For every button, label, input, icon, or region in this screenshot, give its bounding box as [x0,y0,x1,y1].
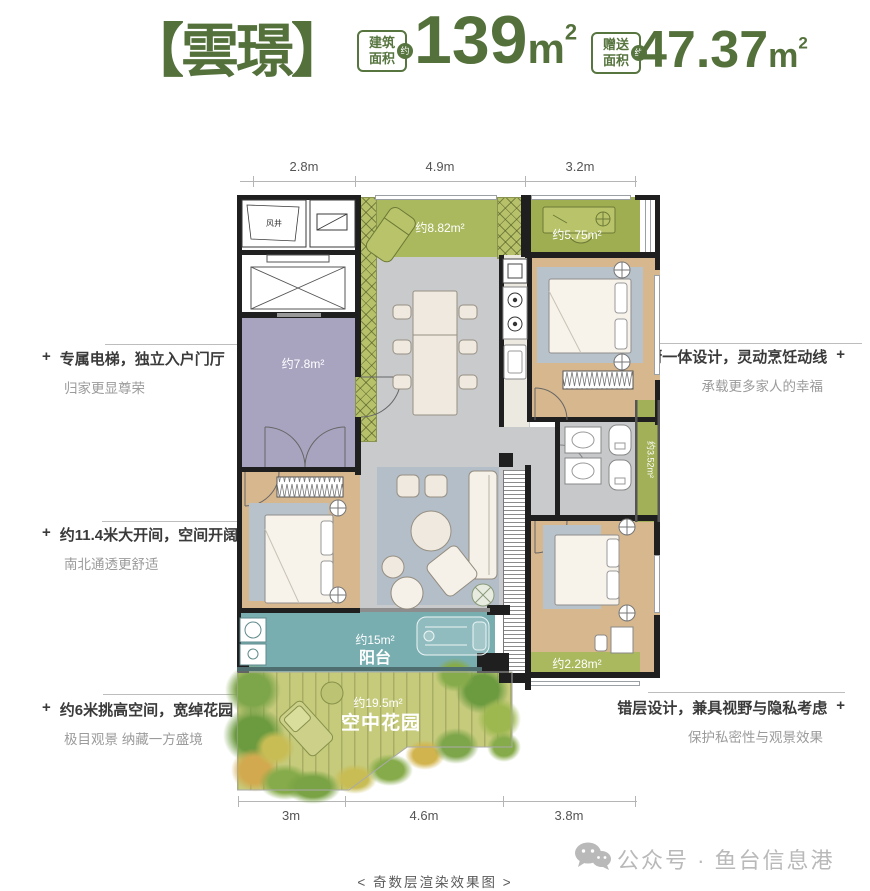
dim-top-3: 3.2m [550,159,610,174]
dim-tick [355,176,356,187]
top-dimension-line [240,181,637,182]
wechat-icon [574,842,612,870]
bed2-bay-area-label: 约2.28m² [542,655,612,672]
study-area-label: 约5.75m² [547,226,607,243]
floorplan: 风井 约7.8m² 约8.82m² 约5.75m² 约3.52m² 约2.28m… [237,195,660,795]
annotation-garden: +约6米挑高空间，宽绰花园 极目观景 纳藏一方盛境 [42,699,233,748]
bedroom2-furniture [543,519,635,653]
plus-marker: + [836,697,845,718]
built-area-label-box: 建筑 面积 约 [357,30,407,72]
leader-line [105,344,245,345]
divider [635,400,638,522]
foyer-area-label: 约7.8m² [273,355,333,372]
dim-bottom-2: 4.6m [394,808,454,823]
render-caption: < 奇数层渲染效果图 > [357,871,512,891]
built-area-number: 139 [414,2,527,78]
bathroom-fixtures [565,425,631,490]
leader-line [103,694,238,695]
dim-tick [238,796,239,807]
dim-top-1: 2.8m [274,159,334,174]
annotation-bay: +约11.4米大开间，空间开阔 南北通透更舒适 [42,524,238,573]
annotation-sub: 南北通透更舒适 [64,553,238,573]
dining-table [393,291,477,415]
watermark-text: 公众号 · 鱼台信息港 [617,843,835,875]
annotation-sub: 承载更多家人的幸福 [632,375,823,395]
divider [658,400,661,522]
floorplan-poster: 【雲璟】 建筑 面积 约 139m2 赠送 面积 约 47.37m2 2.8m … [0,0,870,891]
floorplan-linework [237,195,660,795]
annotation-title: 专属电梯，独立入户门厅 [60,348,225,369]
gift-area-sup: 2 [798,34,807,53]
plus-marker: + [836,346,845,367]
annotation-elevator: +专属电梯，独立入户门厅 归家更显尊荣 [42,348,225,397]
kitchen-fixtures [503,259,527,379]
dim-bottom-1: 3m [261,808,321,823]
dim-bottom-3: 3.8m [539,808,599,823]
built-area-sup: 2 [565,19,577,44]
terrace-area-label: 约8.82m² [395,219,485,236]
annotation-kitchen: 餐厨一体设计，灵动烹饪动线+ 承载更多家人的幸福 [632,346,845,395]
page-title: 【雲璟】 [126,4,346,88]
dim-top-2: 4.9m [410,159,470,174]
elevator [251,255,345,317]
built-area-unit: m [527,25,564,72]
annotation-sub: 极目观景 纳藏一方盛境 [64,728,233,748]
annotation-sub: 归家更显尊荣 [64,377,225,397]
bedroom3-furniture [249,477,346,603]
plus-marker: + [42,524,51,545]
side-terrace-area-label: 约3.52m² [645,430,658,490]
annotation-title: 约11.4米大开间，空间开阔 [60,524,238,545]
dim-tick [635,176,636,187]
plus-marker: + [42,699,51,720]
dim-tick [345,796,346,807]
approx-badge: 约 [397,43,413,59]
dim-tick [525,176,526,187]
balcony-name-label: 阳台 [340,644,410,668]
dim-tick [253,176,254,187]
ac-closet [310,200,355,247]
shaft-label: 风井 [244,218,304,229]
dim-tick [635,796,636,807]
gift-area-value: 47.37m2 [638,24,808,76]
gift-area-unit: m [768,37,798,75]
dim-tick [503,796,504,807]
bedroom1-furniture [537,262,643,389]
living-furniture [377,467,499,609]
annotation-title: 餐厨一体设计，灵动烹饪动线 [632,346,827,367]
plus-marker: + [42,348,51,369]
garden-name-label: 空中花园 [331,708,431,735]
gift-area-number: 47.37 [638,21,768,79]
built-area-value: 139m2 [414,6,577,74]
gift-area-label-box: 赠送 面积 约 [591,32,641,74]
balcony-sill [360,608,490,612]
leader-line [648,692,845,693]
annotation-title: 约6米挑高空间，宽绰花园 [60,699,233,720]
